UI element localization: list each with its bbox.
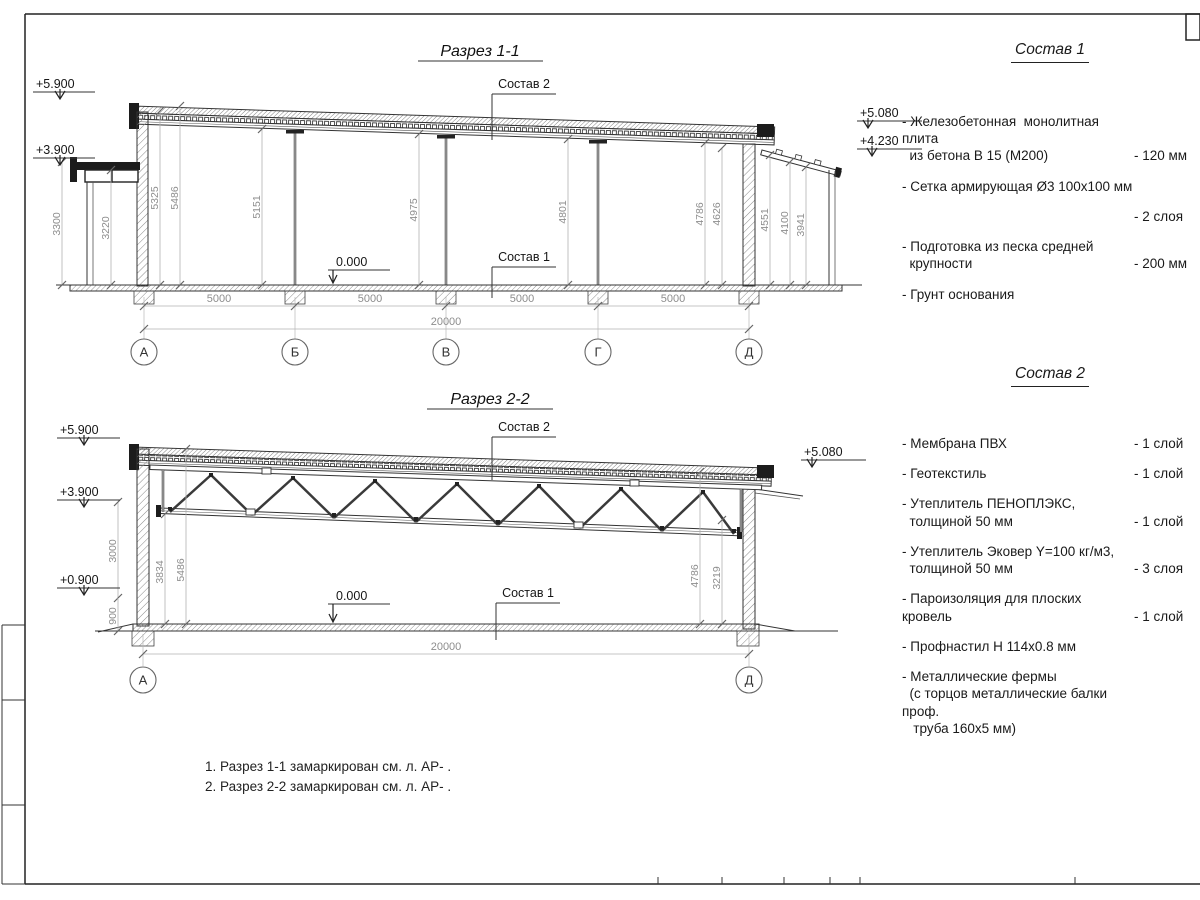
svg-text:+5.080: +5.080 bbox=[860, 106, 899, 120]
svg-text:Состав 2: Состав 2 bbox=[498, 420, 550, 434]
list-item: - Металлические фермы (с торцов металлич… bbox=[902, 668, 1198, 737]
section-2-2: Разрез 2-2 bbox=[57, 391, 866, 693]
svg-text:3220: 3220 bbox=[100, 216, 112, 240]
list-item: - Утеплитель Эковер Y=100 кг/м3, толщино… bbox=[902, 543, 1198, 578]
list-item: - Подготовка из песка средней крупности … bbox=[902, 238, 1198, 273]
svg-text:Состав 1: Состав 1 bbox=[498, 250, 550, 264]
svg-text:5486: 5486 bbox=[175, 558, 187, 582]
callouts: Состав 2 Состав 1 0.000 bbox=[328, 77, 556, 298]
drawing-sheet: Разрез 1-1 bbox=[0, 0, 1200, 900]
svg-text:+5.900: +5.900 bbox=[36, 77, 75, 91]
svg-text:4100: 4100 bbox=[779, 211, 791, 235]
composition-1: Состав 1 - Железобетонная монолитная пли… bbox=[902, 40, 1198, 316]
svg-text:Состав 1: Состав 1 bbox=[502, 586, 554, 600]
roof-right-cap bbox=[757, 465, 774, 478]
svg-text:20000: 20000 bbox=[431, 641, 462, 653]
section-title: Разрез 1-1 bbox=[440, 43, 519, 60]
roof-assembly bbox=[132, 106, 774, 145]
svg-text:5000: 5000 bbox=[510, 293, 534, 305]
callouts: Состав 2 Состав 1 0.000 bbox=[328, 420, 560, 640]
list-item: - Геотекстиль - 1 слой bbox=[902, 465, 1198, 482]
list-item: - Сетка армирующая Ø3 100х100 мм bbox=[902, 178, 1198, 195]
list-item: - Утеплитель ПЕНОПЛЭКС, толщиной 50 мм -… bbox=[902, 495, 1198, 530]
svg-text:А: А bbox=[140, 345, 149, 360]
title-block-ticks bbox=[658, 877, 1075, 884]
corner-stamp-box bbox=[1186, 14, 1200, 40]
svg-text:4786: 4786 bbox=[689, 564, 701, 588]
list-item: - Мембрана ПВХ - 1 слой bbox=[902, 435, 1198, 452]
wall-A bbox=[137, 449, 149, 626]
svg-text:5325: 5325 bbox=[149, 186, 161, 210]
svg-text:А: А bbox=[139, 673, 148, 688]
zero-level-label: 0.000 bbox=[336, 589, 367, 603]
svg-text:В: В bbox=[442, 345, 451, 360]
zero-level-label: 0.000 bbox=[336, 255, 367, 269]
svg-text:Д: Д bbox=[745, 673, 754, 688]
notes: 1. Разрез 1-1 замаркирован см. л. АР- . … bbox=[205, 757, 451, 798]
list-item: - Пароизоляция для плоских кровель - 1 с… bbox=[902, 590, 1198, 625]
list-item: - Профнастил Н 114х0.8 мм bbox=[902, 638, 1198, 655]
list-item: - Грунт основания bbox=[902, 286, 1198, 303]
svg-text:5000: 5000 bbox=[358, 293, 382, 305]
svg-text:Д: Д bbox=[745, 345, 754, 360]
section-title: Разрез 2-2 bbox=[450, 391, 529, 408]
roof-right-cap bbox=[757, 124, 774, 137]
horizontal-dimensions: 20000 bbox=[139, 634, 753, 666]
composition-1-title: Состав 1 bbox=[1011, 40, 1089, 63]
svg-text:Б: Б bbox=[291, 345, 300, 360]
note-line-1: 1. Разрез 1-1 замаркирован см. л. АР- . bbox=[205, 757, 451, 777]
wall-D bbox=[743, 488, 755, 629]
composition-2: Состав 2 - Мембрана ПВХ - 1 слой - Геоте… bbox=[902, 364, 1198, 750]
svg-text:4551: 4551 bbox=[759, 208, 771, 232]
svg-text:900: 900 bbox=[107, 607, 119, 625]
svg-text:4786: 4786 bbox=[694, 202, 706, 226]
list-item: - Железобетонная монолитная плита из бет… bbox=[902, 113, 1198, 165]
svg-text:5486: 5486 bbox=[169, 186, 181, 210]
svg-text:+5.080: +5.080 bbox=[804, 445, 843, 459]
svg-text:4801: 4801 bbox=[557, 200, 569, 224]
svg-text:4975: 4975 bbox=[408, 198, 420, 222]
svg-text:+3.900: +3.900 bbox=[60, 485, 99, 499]
svg-text:4626: 4626 bbox=[711, 202, 723, 226]
svg-text:Г: Г bbox=[594, 345, 601, 360]
note-line-2: 2. Разрез 2-2 замаркирован см. л. АР- . bbox=[205, 777, 451, 797]
svg-text:5151: 5151 bbox=[251, 195, 263, 219]
wall-A bbox=[137, 112, 148, 286]
svg-text:5000: 5000 bbox=[207, 293, 231, 305]
svg-text:20000: 20000 bbox=[431, 316, 462, 328]
svg-text:+3.900: +3.900 bbox=[36, 143, 75, 157]
section-1-1: Разрез 1-1 bbox=[33, 43, 922, 365]
svg-text:3300: 3300 bbox=[51, 212, 63, 236]
svg-text:3219: 3219 bbox=[711, 566, 723, 590]
axis-bubbles: А Д bbox=[130, 667, 762, 693]
svg-text:3000: 3000 bbox=[107, 539, 119, 563]
axis-bubbles: А Б В Г Д bbox=[131, 339, 762, 365]
svg-text:+4.230: +4.230 bbox=[860, 134, 899, 148]
floor-slab bbox=[70, 285, 842, 291]
svg-text:3941: 3941 bbox=[795, 213, 807, 237]
floor-slab bbox=[133, 624, 759, 631]
list-item: - 2 слоя bbox=[902, 208, 1198, 225]
svg-text:3834: 3834 bbox=[154, 560, 166, 584]
svg-text:5000: 5000 bbox=[661, 293, 685, 305]
composition-2-title: Состав 2 bbox=[1011, 364, 1089, 387]
wall-D bbox=[743, 144, 755, 286]
svg-text:+0.900: +0.900 bbox=[60, 573, 99, 587]
roof-assembly bbox=[132, 447, 771, 486]
svg-text:Состав 2: Состав 2 bbox=[498, 77, 550, 91]
svg-text:+5.900: +5.900 bbox=[60, 423, 99, 437]
